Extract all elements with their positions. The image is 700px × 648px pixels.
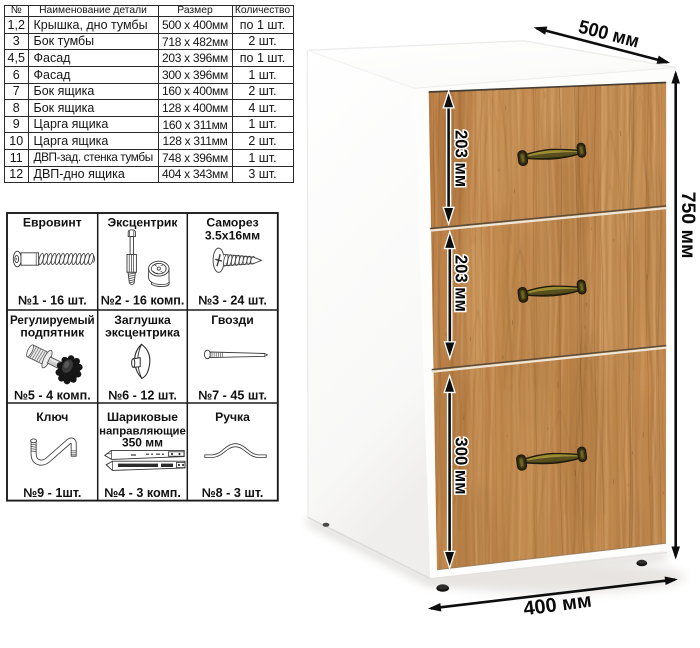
svg-text:№8 - 3 шт.: №8 - 3 шт. <box>202 486 264 500</box>
svg-text:Эксцентрик: Эксцентрик <box>107 216 178 230</box>
svg-text:400 мм: 400 мм <box>522 590 593 621</box>
svg-text:300 мм: 300 мм <box>452 437 471 494</box>
svg-text:Саморез: Саморез <box>206 216 258 230</box>
svg-text:№9 - 1шт.: №9 - 1шт. <box>23 486 81 500</box>
svg-text:Ключ: Ключ <box>36 410 68 424</box>
svg-text:350 мм: 350 мм <box>122 436 163 450</box>
svg-text:Гвозди: Гвозди <box>211 313 254 327</box>
svg-text:№5 - 4 комп.: №5 - 4 комп. <box>14 389 91 403</box>
svg-text:эксцентрика: эксцентрика <box>105 325 180 339</box>
svg-text:№1 - 16 шт.: №1 - 16 шт. <box>18 294 87 308</box>
svg-text:№7 - 45 шт.: №7 - 45 шт. <box>198 389 267 403</box>
svg-text:№2 - 16 комп.: №2 - 16 комп. <box>101 294 185 308</box>
svg-text:Ручка: Ручка <box>215 410 250 424</box>
svg-text:№4 - 3 комп.: №4 - 3 комп. <box>104 486 181 500</box>
svg-text:Евровинт: Евровинт <box>23 216 82 230</box>
svg-text:подпятник: подпятник <box>20 325 85 339</box>
svg-text:№6 - 12 шт.: №6 - 12 шт. <box>108 389 177 403</box>
svg-text:№3 - 24 шт.: №3 - 24 шт. <box>198 294 267 308</box>
svg-text:203 мм: 203 мм <box>452 255 471 312</box>
svg-text:750 мм: 750 мм <box>677 192 699 259</box>
svg-text:Шариковые: Шариковые <box>107 410 178 424</box>
svg-text:3.5х16мм: 3.5х16мм <box>205 229 260 243</box>
svg-text:203 мм: 203 мм <box>452 130 471 187</box>
